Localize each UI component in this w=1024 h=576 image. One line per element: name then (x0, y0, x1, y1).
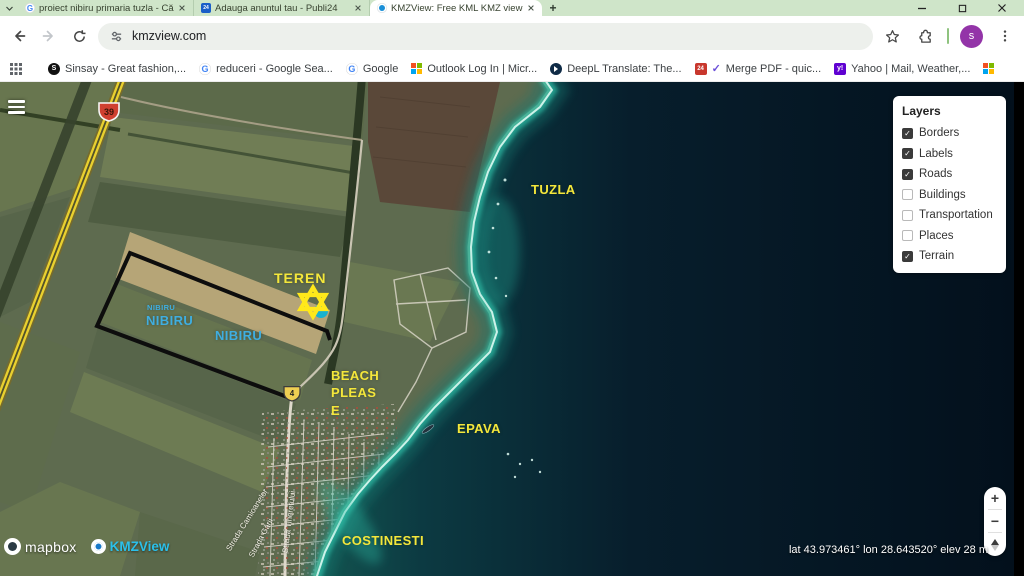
road-shield-39: 39 (99, 103, 119, 121)
zoom-in-button[interactable]: + (984, 487, 1006, 509)
pdf24-favicon-icon: 24 (695, 63, 707, 75)
forward-button[interactable] (38, 25, 60, 47)
tab-publi24[interactable]: 24 Adauga anuntul tau - Publi24 (194, 0, 370, 16)
layer-label: Places (919, 230, 954, 242)
coordinates-readout: lat 43.973461° lon 28.643520° elev 28 m (789, 544, 988, 556)
mapbox-wordmark: mapbox (25, 539, 77, 555)
bookmark-label: Outlook Log In | Micr... (427, 63, 537, 75)
bookmark-deepl[interactable]: DeepL Translate: The... (550, 63, 681, 75)
bookmark-google[interactable]: G Google (346, 63, 398, 75)
svg-text:4: 4 (290, 389, 295, 398)
apps-grid-icon (10, 63, 22, 75)
minimize-icon (917, 3, 927, 13)
publi24-favicon-icon: 24 (201, 3, 211, 13)
maximize-button[interactable] (942, 0, 982, 16)
map-label-nibiru-small: NIBIRU (147, 303, 175, 312)
layer-row-labels[interactable]: Labels (902, 144, 997, 165)
reload-icon (72, 29, 87, 44)
map-label-epava: EPAVA (457, 421, 501, 436)
map-menu-button[interactable] (8, 100, 25, 114)
microsoft-favicon-icon (983, 63, 994, 74)
tab-proiect-nibiru[interactable]: G proiect nibiru primaria tuzla - Cău (18, 0, 194, 16)
deepl-favicon-icon (550, 63, 562, 75)
layer-row-terrain[interactable]: Terrain (902, 246, 997, 267)
map-label-costinesti: COSTINESTI (342, 533, 424, 548)
layer-label: Buildings (919, 189, 966, 201)
hamburger-icon (8, 100, 25, 103)
microsoft-favicon-icon (411, 63, 422, 74)
map-label-nibiru-right: NIBIRU (215, 328, 262, 343)
tab-kmzview-active[interactable]: KMZView: Free KML KMZ viewer (370, 0, 542, 16)
back-arrow-icon (11, 28, 27, 44)
layer-label: Transportation (919, 209, 993, 221)
layers-panel-title: Layers (902, 104, 997, 118)
browser-menu-button[interactable] (994, 25, 1016, 47)
tab-title: proiect nibiru primaria tuzla - Cău (39, 3, 174, 14)
map-label-beach-please: BEACH PLEAS E (331, 367, 379, 419)
layer-checkbox[interactable] (902, 148, 913, 159)
svg-text:39: 39 (104, 107, 114, 117)
layer-checkbox[interactable] (902, 189, 913, 200)
layer-checkbox[interactable] (902, 128, 913, 139)
check-icon: ✓ (712, 62, 721, 75)
layer-checkbox[interactable] (902, 251, 913, 262)
yahoo-favicon-icon: y! (834, 63, 846, 75)
satellite-map-canvas[interactable]: 39 4 (0, 82, 1014, 576)
layer-label: Borders (919, 127, 959, 139)
bookmark-star-button[interactable] (881, 25, 903, 47)
tab-close-icon[interactable] (527, 4, 535, 12)
layer-row-places[interactable]: Places (902, 226, 997, 247)
bookmark-reduceri[interactable]: G reduceri - Google Sea... (199, 63, 333, 75)
bookmark-label: Yahoo | Mail, Weather,... (851, 63, 970, 75)
layer-row-borders[interactable]: Borders (902, 123, 997, 144)
kmzview-favicon-icon (377, 3, 387, 13)
map-label-tuzla: TUZLA (531, 182, 576, 197)
minimize-button[interactable] (902, 0, 942, 16)
apps-button[interactable] (10, 61, 22, 77)
bookmark-label: DeepL Translate: The... (567, 63, 681, 75)
bookmarks-bar: S Sinsay - Great fashion,... G reduceri … (0, 56, 1024, 82)
new-tab-button[interactable]: + (542, 1, 564, 15)
extensions-button[interactable] (914, 25, 936, 47)
map-label-teren: TEREN (274, 270, 326, 286)
mapbox-logo[interactable]: mapbox (4, 538, 77, 555)
tab-title: KMZView: Free KML KMZ viewer (391, 3, 523, 14)
beach-line-1: BEACH (331, 367, 379, 384)
map-attribution: mapbox KMZView (4, 538, 169, 555)
bookmark-label: Sinsay - Great fashion,... (65, 63, 186, 75)
close-icon (997, 3, 1007, 13)
google-favicon-icon: G (199, 63, 211, 75)
back-button[interactable] (8, 25, 30, 47)
close-window-button[interactable] (982, 0, 1022, 16)
road-shield-4: 4 (284, 387, 300, 401)
address-url[interactable]: kmzview.com (132, 29, 206, 43)
theme-divider (947, 28, 949, 44)
puzzle-icon (918, 29, 933, 44)
page-content: 39 4 TUZLA TEREN NIBIRU NIBIRU NIBIRU BE… (0, 82, 1024, 576)
reload-button[interactable] (68, 25, 90, 47)
tab-strip: G proiect nibiru primaria tuzla - Cău 24… (0, 0, 1024, 16)
mapbox-mark-icon (4, 538, 21, 555)
window-controls (902, 0, 1022, 16)
compass-south-icon (991, 545, 999, 551)
bookmark-yahoo[interactable]: y! Yahoo | Mail, Weather,... (834, 63, 970, 75)
google-favicon-icon: G (25, 3, 35, 13)
bookmark-sinsay[interactable]: S Sinsay - Great fashion,... (48, 63, 186, 75)
tab-close-icon[interactable] (354, 4, 362, 12)
layer-checkbox[interactable] (902, 169, 913, 180)
layer-row-buildings[interactable]: Buildings (902, 185, 997, 206)
map-label-nibiru-left: NIBIRU (146, 313, 193, 328)
bookmark-label: reduceri - Google Sea... (216, 63, 333, 75)
map-viewport[interactable]: 39 4 TUZLA TEREN NIBIRU NIBIRU NIBIRU BE… (0, 82, 1014, 576)
tab-search-button[interactable] (0, 0, 18, 16)
beach-line-2: PLEAS (331, 384, 379, 401)
tab-close-icon[interactable] (178, 4, 186, 12)
profile-avatar[interactable]: s (960, 25, 983, 48)
kmzview-wordmark: KMZView (110, 539, 170, 554)
browser-toolbar: kmzview.com s (0, 16, 1024, 56)
layer-checkbox[interactable] (902, 230, 913, 241)
layers-panel: Layers Borders Labels Roads Buildings (893, 96, 1006, 273)
bookmark-label: Google (363, 63, 398, 75)
bookmark-merge-pdf[interactable]: 24 ✓ Merge PDF - quic... (695, 62, 822, 75)
google-favicon-icon: G (346, 63, 358, 75)
layer-label: Terrain (919, 250, 954, 262)
tab-title: Adauga anuntul tau - Publi24 (215, 3, 350, 14)
zoom-out-button[interactable]: − (984, 510, 1006, 532)
layer-checkbox[interactable] (902, 210, 913, 221)
layer-label: Roads (919, 168, 952, 180)
bookmark-label: Merge PDF - quic... (726, 63, 821, 75)
sinsay-favicon-icon: S (48, 63, 60, 75)
star-icon (885, 29, 900, 44)
site-settings-icon[interactable] (110, 30, 123, 43)
address-bar[interactable]: kmzview.com (98, 23, 873, 50)
browser-window: G proiect nibiru primaria tuzla - Cău 24… (0, 0, 1024, 576)
forward-arrow-icon (41, 28, 57, 44)
layer-label: Labels (919, 148, 953, 160)
maximize-icon (958, 4, 967, 13)
kebab-menu-icon (998, 29, 1012, 43)
beach-line-3: E (331, 402, 379, 419)
layer-row-roads[interactable]: Roads (902, 164, 997, 185)
toolbar-right-group: s (881, 25, 1016, 48)
chevron-down-icon (5, 4, 14, 13)
bookmark-outlook[interactable]: Outlook Log In | Micr... (411, 63, 537, 75)
layer-row-transportation[interactable]: Transportation (902, 205, 997, 226)
kmzview-mark-icon (91, 539, 106, 554)
kmzview-logo[interactable]: KMZView (91, 539, 170, 554)
bookmark-microsoft[interactable] (983, 63, 999, 74)
